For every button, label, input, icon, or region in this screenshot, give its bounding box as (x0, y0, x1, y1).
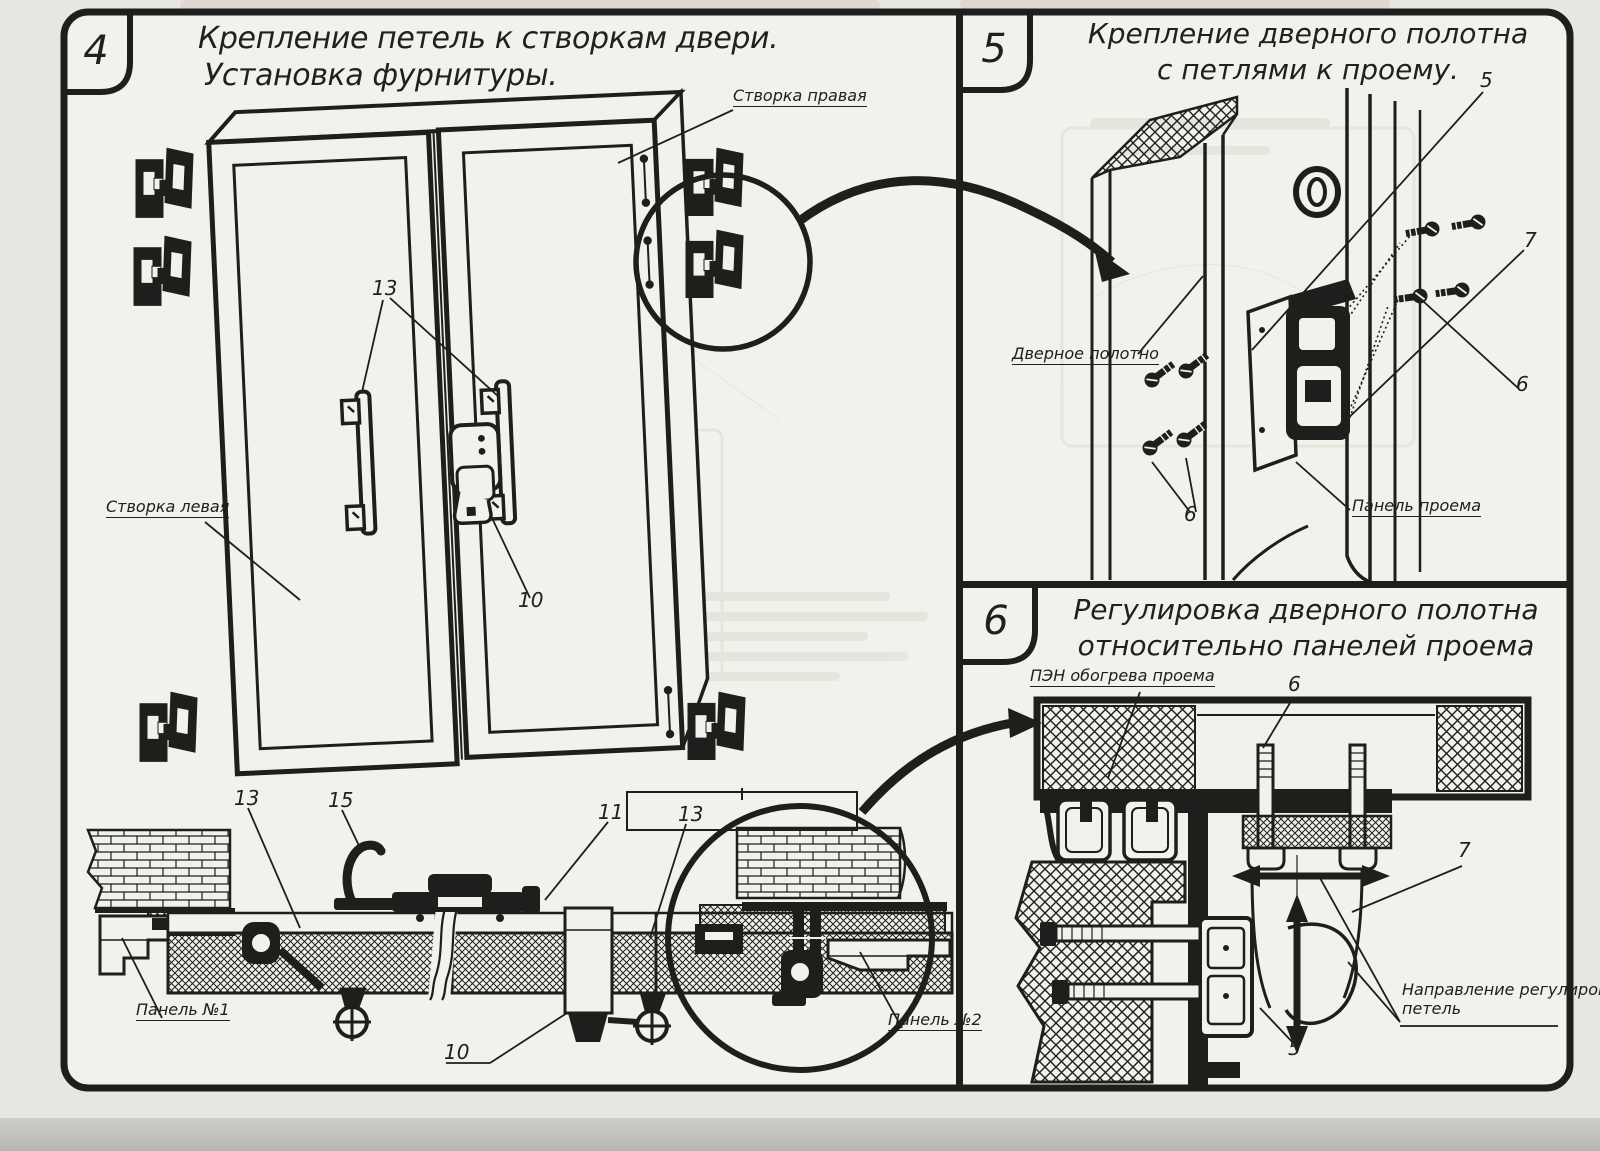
callout-10-lock: 10 (518, 588, 543, 612)
label-panel-no1: Панель №1 (136, 1000, 230, 1021)
panel5-number: 5 (962, 26, 1026, 72)
lock-pocket (565, 908, 612, 1013)
panel-divider-vertical (956, 12, 963, 1088)
panel4-title: Крепление петель к створкам двери. Устан… (198, 20, 778, 94)
label-door-leaf: Дверное полотно (1012, 344, 1159, 365)
panel6-title: Регулировка дверного полотна относительн… (1046, 592, 1566, 664)
callout-15-hook: 15 (328, 788, 353, 812)
brick-wall-left (88, 830, 230, 908)
label-leaf-right: Створка правая (733, 86, 867, 107)
callout-5-hinge: 5 (1480, 68, 1493, 92)
label-opening-panel: Панель проема (1352, 496, 1481, 517)
brick-wall-right (737, 828, 900, 898)
callout-10-pocket: 10 (444, 1040, 469, 1064)
instruction-sheet: 4 5 6 Крепление петель к створкам двери.… (0, 0, 1600, 1151)
panel-divider-horizontal (959, 581, 1570, 588)
panel4-number: 4 (64, 28, 128, 74)
drawing-linework (0, 0, 1600, 1151)
callout-7-loop: 7 (1458, 838, 1471, 862)
callout-13-section-left: 13 (234, 786, 259, 810)
callout-6-screws-left: 6 (1184, 502, 1197, 526)
heater-block-right (1437, 706, 1522, 791)
scan-edge-shadow (0, 1118, 1600, 1151)
label-panel-no2: Панель №2 (888, 1010, 982, 1031)
callout-13-handles: 13 (372, 276, 397, 300)
label-direction: Направление регулировки петель (1402, 980, 1600, 1018)
callout-7-bracket: 7 (1524, 228, 1537, 252)
label-heater: ПЭН обогрева проема (1030, 666, 1215, 687)
handle-hole (1296, 169, 1338, 215)
callout-13-section-right: 13 (678, 802, 703, 826)
callout-6-screws-right: 6 (1516, 372, 1529, 396)
callout-6-bolt: 6 (1288, 672, 1301, 696)
callout-5-profile: 5 (1288, 1036, 1301, 1060)
label-leaf-left: Створка левая (106, 497, 229, 518)
panel6-number: 6 (964, 598, 1028, 644)
callout-11-clamp: 11 (598, 800, 623, 824)
